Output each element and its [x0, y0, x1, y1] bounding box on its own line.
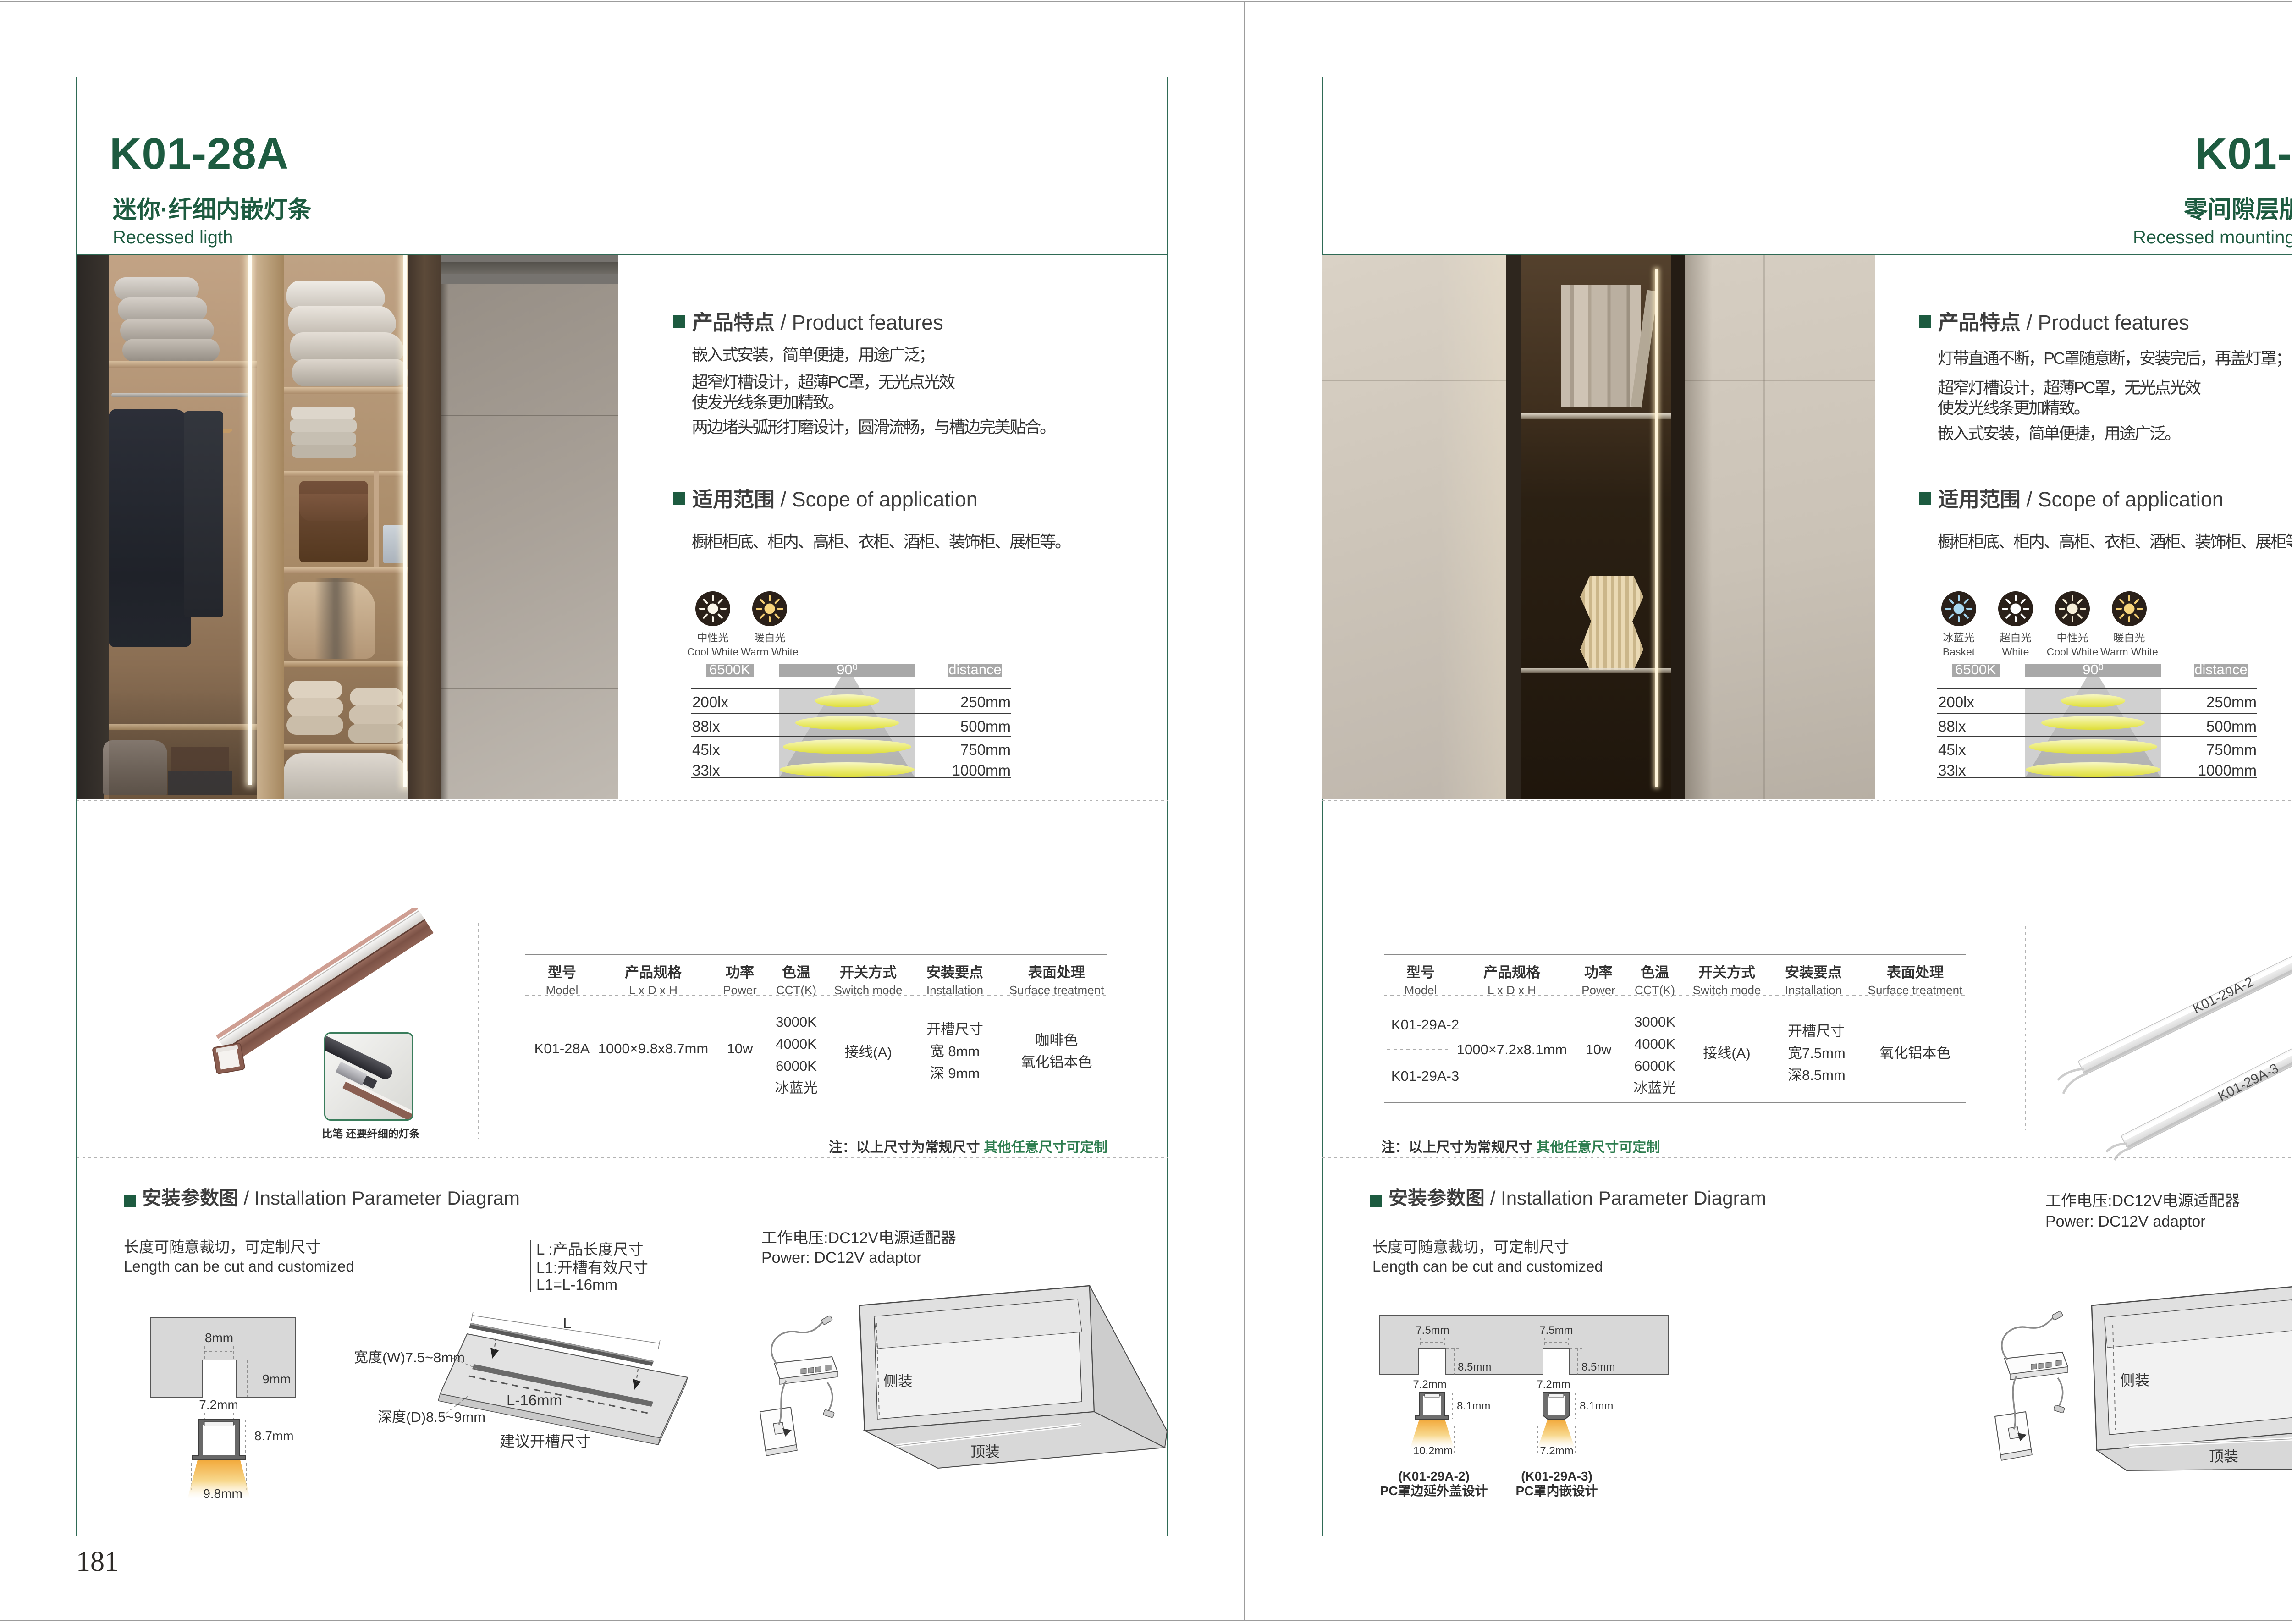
svg-text:顶装: 顶装	[970, 1443, 1000, 1460]
svg-text:distance: distance	[2194, 661, 2247, 677]
svg-text:8.1mm: 8.1mm	[1457, 1400, 1490, 1412]
svg-text:L1=L-16mm: L1=L-16mm	[536, 1276, 617, 1293]
svg-text:建议开槽尺寸: 建议开槽尺寸	[500, 1433, 590, 1450]
svg-text:7.2mm: 7.2mm	[199, 1398, 238, 1412]
svg-text:1000mm: 1000mm	[952, 762, 1011, 779]
svg-text:9.8mm: 9.8mm	[203, 1486, 242, 1501]
svg-text:8.7mm: 8.7mm	[254, 1429, 294, 1443]
svg-text:750mm: 750mm	[960, 741, 1011, 758]
svg-text:PC罩边延外盖设计: PC罩边延外盖设计	[1380, 1483, 1488, 1498]
svg-text:88lx: 88lx	[1938, 718, 1966, 735]
svg-text:8.5mm: 8.5mm	[1458, 1361, 1491, 1373]
svg-text:10.2mm: 10.2mm	[1413, 1445, 1453, 1457]
svg-text:8.1mm: 8.1mm	[1580, 1400, 1613, 1412]
svg-text:200lx: 200lx	[692, 694, 728, 710]
svg-text:250mm: 250mm	[960, 694, 1011, 710]
svg-text:宽度(W)7.5~8mm: 宽度(W)7.5~8mm	[354, 1349, 465, 1365]
svg-text:distance: distance	[948, 661, 1001, 677]
svg-text:8.5mm: 8.5mm	[1581, 1361, 1615, 1373]
svg-text:9mm: 9mm	[262, 1372, 291, 1386]
svg-text:侧装: 侧装	[2120, 1372, 2149, 1388]
svg-text:33lx: 33lx	[692, 762, 720, 779]
svg-text:7.2mm: 7.2mm	[1537, 1378, 1570, 1391]
svg-text:(K01-29A-3): (K01-29A-3)	[1521, 1469, 1592, 1483]
svg-text:500mm: 500mm	[960, 718, 1011, 735]
svg-text:750mm: 750mm	[2206, 741, 2257, 758]
svg-text:500mm: 500mm	[2206, 718, 2257, 735]
svg-text:顶装: 顶装	[2209, 1448, 2238, 1464]
svg-text:45lx: 45lx	[1938, 741, 1966, 758]
svg-text:45lx: 45lx	[692, 741, 720, 758]
svg-text:7.2mm: 7.2mm	[1540, 1445, 1573, 1457]
svg-text:6500K: 6500K	[1955, 661, 1996, 677]
svg-text:7.5mm: 7.5mm	[1539, 1324, 1573, 1337]
svg-text:200lx: 200lx	[1938, 694, 1974, 710]
svg-text:深度(D)8.5~9mm: 深度(D)8.5~9mm	[378, 1409, 485, 1425]
svg-text:250mm: 250mm	[2206, 694, 2257, 710]
svg-text:8mm: 8mm	[205, 1331, 233, 1345]
svg-text:L: L	[563, 1315, 571, 1332]
svg-text:PC罩内嵌设计: PC罩内嵌设计	[1516, 1484, 1598, 1498]
svg-text:L1:开槽有效尺寸: L1:开槽有效尺寸	[536, 1259, 648, 1276]
svg-text:1000mm: 1000mm	[2198, 762, 2257, 779]
svg-text:侧装: 侧装	[883, 1373, 913, 1389]
svg-text:L :产品长度尺寸: L :产品长度尺寸	[536, 1241, 643, 1258]
svg-text:33lx: 33lx	[1938, 762, 1966, 779]
svg-text:L-16mm: L-16mm	[507, 1392, 562, 1409]
svg-text:(K01-29A-2): (K01-29A-2)	[1398, 1469, 1470, 1483]
svg-text:7.2mm: 7.2mm	[1413, 1378, 1446, 1391]
svg-text:6500K: 6500K	[709, 661, 750, 677]
svg-text:7.5mm: 7.5mm	[1416, 1324, 1449, 1337]
svg-text:88lx: 88lx	[692, 718, 720, 735]
